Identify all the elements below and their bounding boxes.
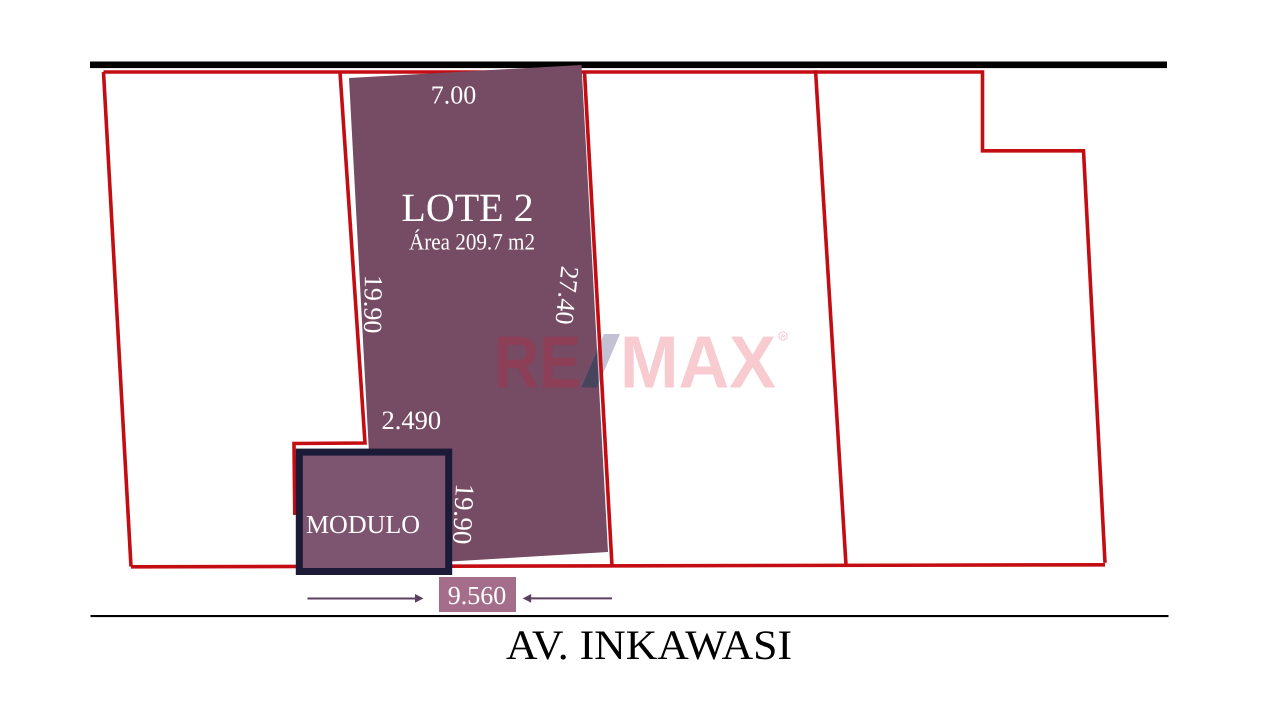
svg-text:R: R: [781, 334, 786, 341]
svg-text:7.00: 7.00: [431, 81, 477, 110]
svg-text:27.40: 27.40: [549, 265, 584, 326]
svg-text:9.560: 9.560: [448, 581, 507, 610]
svg-text:19.90: 19.90: [358, 275, 388, 334]
svg-text:2.490: 2.490: [381, 405, 441, 435]
svg-text:MODULO: MODULO: [306, 510, 420, 539]
svg-text:LOTE 2: LOTE 2: [401, 185, 533, 230]
svg-text:RE: RE: [494, 321, 581, 404]
svg-text:Área 209.7 m2: Área 209.7 m2: [409, 229, 535, 256]
svg-text:AV. INKAWASI: AV. INKAWASI: [506, 623, 792, 669]
svg-text:MAX: MAX: [620, 321, 776, 404]
